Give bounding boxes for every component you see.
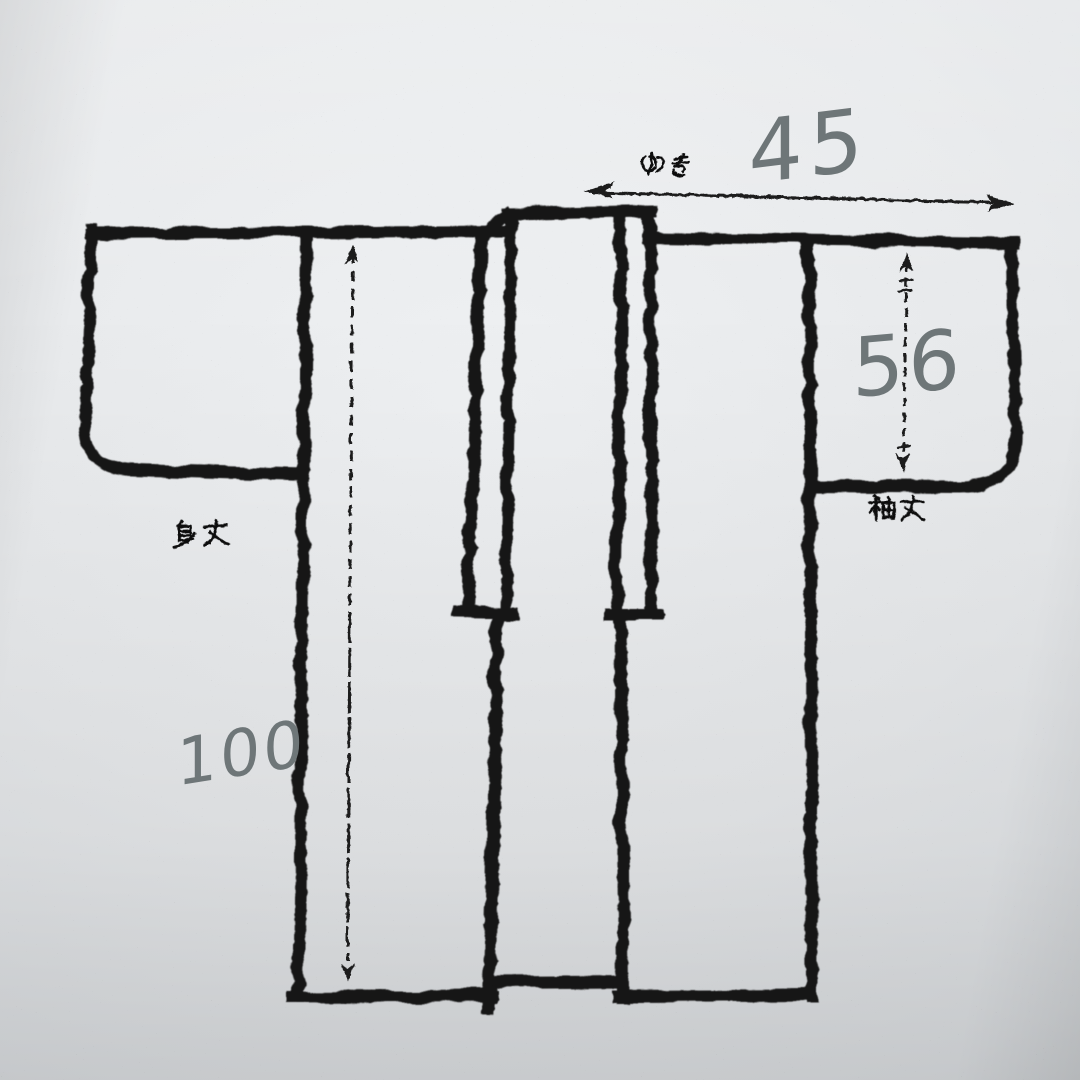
kimono-measurement-photo: 45 56 100: [0, 0, 1080, 1080]
mitake-value: 100: [177, 711, 307, 796]
sode-value: 56: [852, 319, 964, 411]
yuki-value: 45: [748, 96, 869, 197]
kimono-diagram-svg: [0, 0, 1080, 1080]
grain-overlay: [0, 0, 1080, 1080]
